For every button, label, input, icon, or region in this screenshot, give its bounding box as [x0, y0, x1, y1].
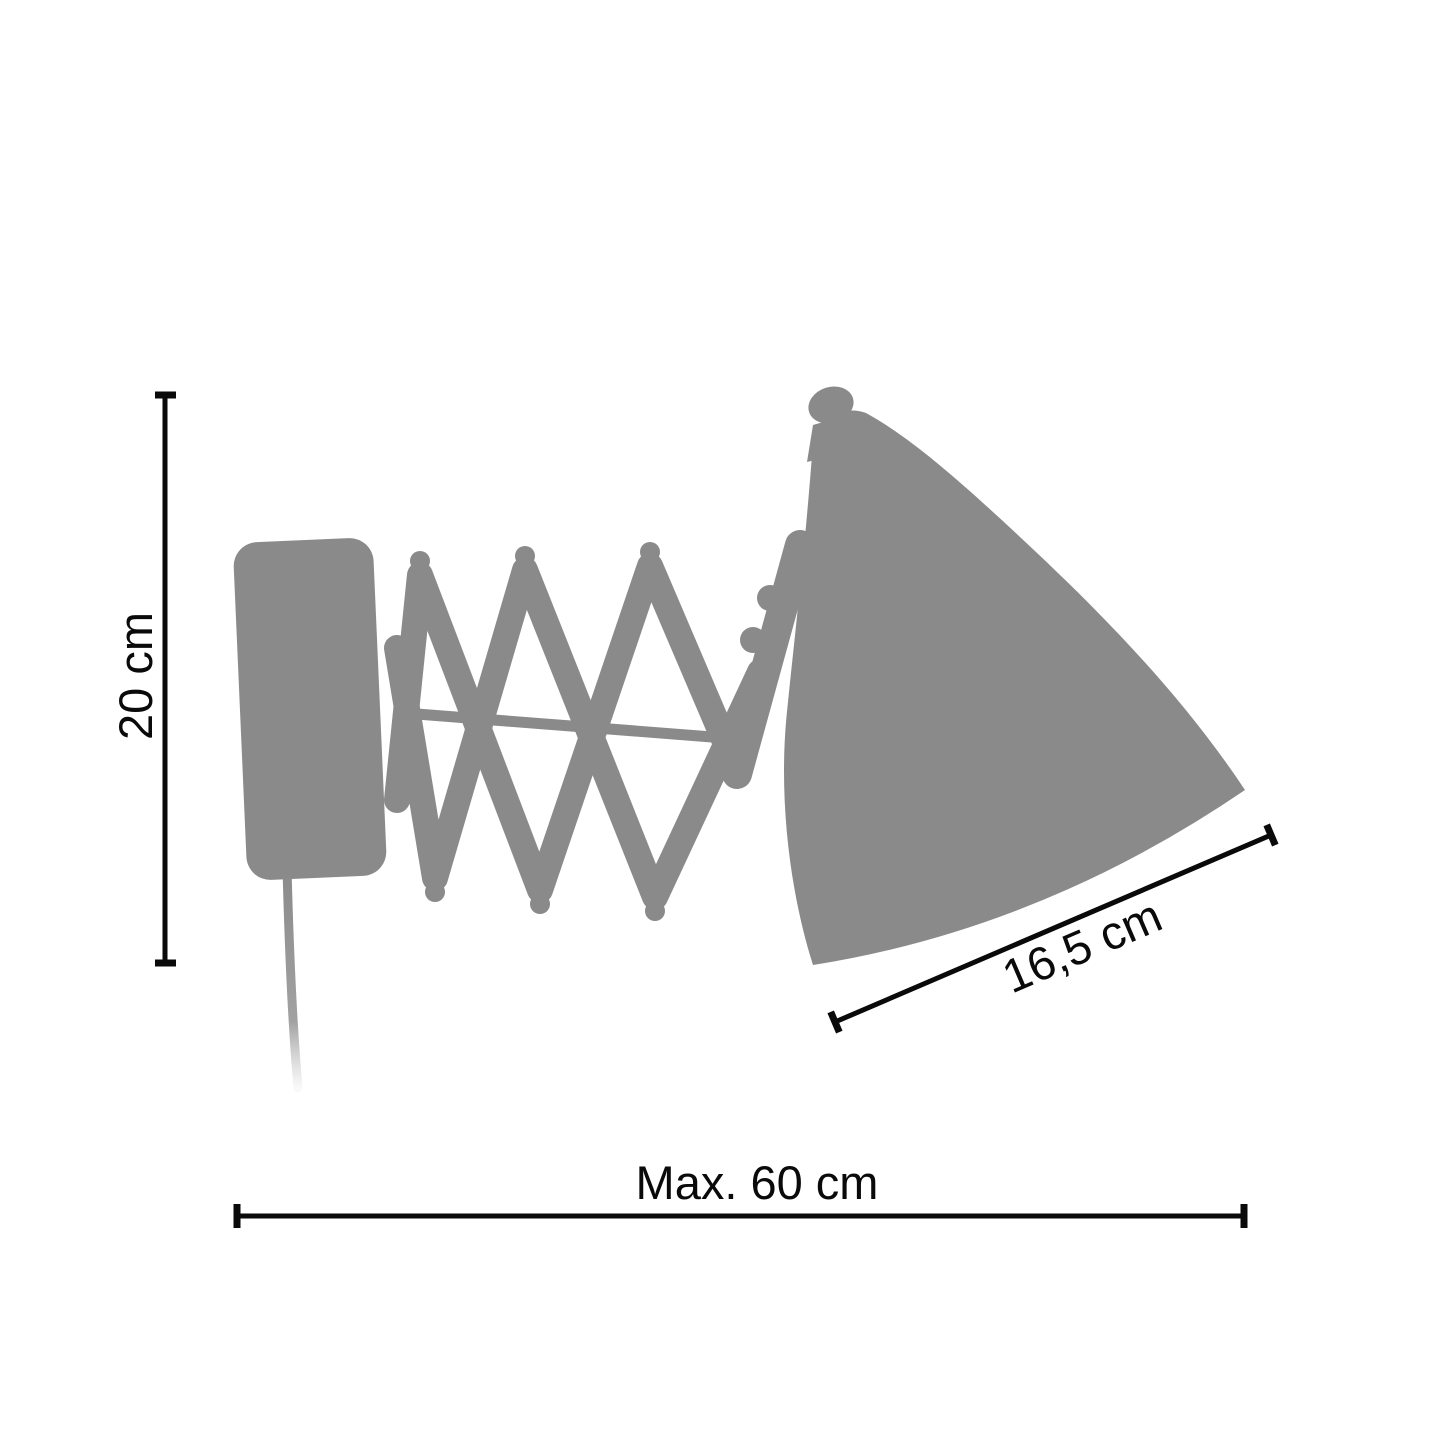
diameter-cap-right — [1267, 825, 1276, 845]
dimension-diagram: 20 cm 16,5 cm Max. 60 cm — [0, 0, 1445, 1445]
center-rod — [404, 713, 712, 737]
wall-mount-plate — [233, 537, 388, 881]
power-cord — [287, 868, 298, 1088]
max-extension-dimension-label: Max. 60 cm — [636, 1157, 879, 1209]
diagram-canvas — [0, 0, 1445, 1445]
scissor-arm — [397, 545, 800, 897]
diameter-cap-left — [831, 1012, 840, 1032]
lamp-silhouette — [233, 381, 1245, 1088]
shade-body — [784, 411, 1245, 965]
height-dimension-label: 20 cm — [110, 612, 162, 740]
